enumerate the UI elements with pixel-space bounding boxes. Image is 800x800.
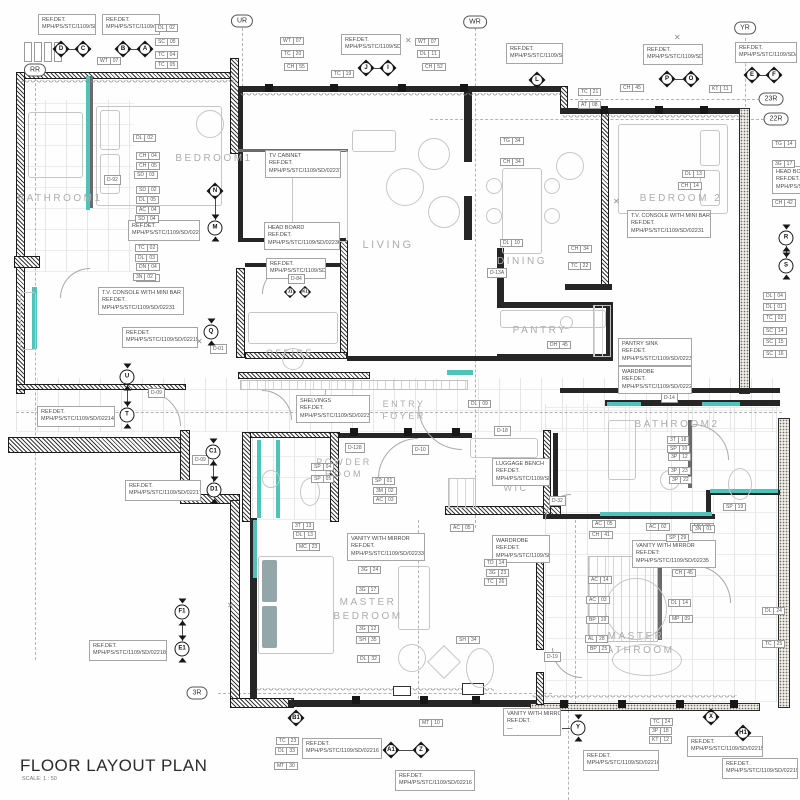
column-pier <box>472 696 480 704</box>
wall-segment <box>236 268 245 358</box>
furniture-outline <box>352 130 396 152</box>
ref-detail-note: REF.DET.MPH/PS/STC/1109/SD/02210 <box>735 42 797 63</box>
wall-segment <box>242 432 340 438</box>
centerline <box>568 700 569 800</box>
teal-wall-finish <box>257 440 261 518</box>
section-marker: R <box>779 231 794 246</box>
wall-segment <box>347 356 613 361</box>
finish-tag: TC05 <box>155 61 178 69</box>
room-label: BATHROOM1 <box>17 192 102 206</box>
furniture-outline <box>100 110 120 150</box>
elevation-marker: A1 <box>382 741 400 759</box>
section-marker: Y <box>571 721 586 736</box>
finish-tag: DL24 <box>762 607 785 615</box>
finish-tag: MC23 <box>296 543 320 551</box>
wall-segment <box>739 108 750 394</box>
finish-tag: DL04 <box>763 292 786 300</box>
finish-tag: AC03 <box>586 596 610 604</box>
finish-tag: DL13 <box>682 170 705 178</box>
ref-detail-note: REF.DET.MPH/PS/STC/1109/SD/02216 <box>395 770 475 791</box>
ref-detail-note: REF.DET.MPH/PS/STC/1109/SD/02238 <box>38 14 96 35</box>
ref-detail-note: HEAD BOARDREF.DET.MPH/PS/S <box>772 166 800 194</box>
elevation-marker: A <box>136 40 154 58</box>
teal-wall-finish <box>607 402 641 406</box>
elevation-marker: B1 <box>287 709 305 727</box>
room-label: DINING <box>497 255 547 269</box>
ref-detail-note: PANTRY SINKREF.DET.MPH/PS/STC/1109/SD/02… <box>618 338 692 366</box>
wall-segment <box>464 196 472 240</box>
finish-tag: TD14 <box>484 559 507 567</box>
elevation-marker: B <box>114 40 132 58</box>
furniture-outline <box>544 178 560 194</box>
finish-tag: DN04 <box>136 263 160 271</box>
finish-tag: 3P23 <box>668 467 691 475</box>
door-swing-arc <box>60 268 90 298</box>
finish-tag: BP25 <box>587 645 610 653</box>
finish-tag: DL01 <box>763 303 786 311</box>
ref-detail-note: REF.DET.MPH/PS/STC/1109/SD/02217 <box>125 480 201 501</box>
finish-tag: DL14 <box>668 599 691 607</box>
finish-tag: TC21 <box>578 88 601 96</box>
furniture-outline <box>593 305 611 357</box>
furniture-outline <box>418 138 450 170</box>
column-pier <box>404 428 412 436</box>
furniture-outline <box>398 566 430 630</box>
finish-tag: SP05 <box>311 475 334 483</box>
finish-tag: TC02 <box>135 244 158 252</box>
elevation-marker: J <box>357 59 375 77</box>
grid-bubble: UR <box>231 15 253 28</box>
finish-tag: AC05 <box>450 524 474 532</box>
ref-detail-note: REF.DET.MPH/PS/STC/1109/SD/02211 <box>341 34 401 55</box>
finish-tag: DL02 <box>155 24 178 32</box>
finish-tag: 3G17 <box>356 586 379 594</box>
finish-tag: AT08 <box>578 101 601 109</box>
elevation-marker: C <box>74 40 92 58</box>
finish-tag-vertical <box>44 42 52 62</box>
finish-tag: TC20 <box>281 50 304 58</box>
elevation-marker: I <box>379 59 397 77</box>
elevation-marker: P <box>658 70 676 88</box>
furniture-outline <box>556 152 584 180</box>
finish-tag: SP10 <box>667 445 690 453</box>
finish-tag: SH34 <box>456 636 480 644</box>
finish-tag: BP19 <box>586 616 609 624</box>
elevation-marker: L <box>528 71 546 89</box>
elevation-marker: Z <box>412 741 430 759</box>
ref-detail-note: VANITY WITH MIRRORREF.DET:MPH/PS/STC/110… <box>632 540 716 568</box>
teal-wall-finish <box>600 512 712 516</box>
furniture-outline <box>262 470 280 488</box>
furniture-outline <box>100 154 120 194</box>
column-pier <box>330 84 338 92</box>
finish-tag: SC05 <box>155 38 179 46</box>
elevation-marker: N <box>206 182 224 200</box>
finish-tag-vertical <box>34 42 42 62</box>
finish-tag: SD03 <box>134 171 158 179</box>
elevation-marker: O <box>682 70 700 88</box>
wall-segment <box>288 700 540 707</box>
wall-segment <box>16 72 238 79</box>
wall-segment <box>536 672 544 705</box>
furniture-outline <box>20 292 36 350</box>
finish-tag: TC24 <box>650 718 673 726</box>
finish-tag: CH34 <box>568 245 592 253</box>
section-marker: S <box>779 259 794 274</box>
finish-tag: CH41 <box>589 531 613 539</box>
marker-connector <box>399 750 413 751</box>
finish-tag: 3P12 <box>668 453 691 461</box>
room-label: BEDROOM 2 <box>640 192 723 206</box>
door-swing-arc <box>378 438 418 478</box>
section-marker: D1 <box>207 483 222 498</box>
finish-tag: KT12 <box>649 736 672 744</box>
ref-detail-note: T.V. CONSOLE WITH MINI BARREF.DET.MPH/PS… <box>98 287 184 315</box>
wall-segment <box>238 92 243 240</box>
column-pier <box>265 84 273 92</box>
teal-wall-finish <box>447 370 473 375</box>
ref-detail-note: REF.DET.MPH/PS/STC/1109/SD/02212 <box>643 44 703 65</box>
finish-tag: AC05 <box>592 520 616 528</box>
insulation-squiggle <box>562 115 744 120</box>
finish-tag: TG34 <box>500 137 524 145</box>
finish-tag: 3P22 <box>669 476 692 484</box>
furniture-outline <box>700 130 720 166</box>
ref-detail-note: T.V. CONSOLE WITH MINI BARREF.DET.MPH/PS… <box>627 210 711 238</box>
column-pier <box>700 106 708 114</box>
wall-segment <box>238 372 370 379</box>
column-pier <box>560 700 568 708</box>
door-tag: D-32 <box>549 496 566 506</box>
room-label: PANTRY <box>513 324 568 338</box>
elevation-marker: D <box>52 40 70 58</box>
room-label: BATHROOM2 <box>634 418 719 432</box>
furniture-outline <box>486 208 502 224</box>
finish-tag: WT07 <box>97 57 121 65</box>
finish-tag: DL11 <box>417 50 440 58</box>
ref-detail-note: REF.DET.MPH/PS/STC/1109/SD/02216 <box>583 750 659 771</box>
furniture-outline <box>448 478 476 508</box>
grid-bubble: YR <box>734 22 756 35</box>
column-pier <box>655 106 663 114</box>
door-tag: D-14 <box>661 393 678 403</box>
ref-detail-note: REF.DET.MPH/PS/STC/1109/SD/02218 <box>89 640 167 661</box>
finish-tag: 3G23 <box>486 569 509 577</box>
door-tag: D-128 <box>345 443 365 453</box>
furniture-outline <box>470 438 538 458</box>
door-tag: D-13A <box>487 268 507 278</box>
page-title: FLOOR LAYOUT PLAN <box>20 756 207 776</box>
finish-tag: TC23 <box>276 737 299 745</box>
finish-tag: KT11 <box>709 85 732 93</box>
column-pier <box>618 700 626 708</box>
insulation-squiggle <box>256 688 494 693</box>
finish-tag: TG14 <box>772 140 796 148</box>
door-tag: D-19 <box>544 652 561 662</box>
grid-bubble: 23R <box>759 93 784 106</box>
room-label: ENTRYFOYER <box>382 398 426 422</box>
finish-tag: MT30 <box>274 762 298 770</box>
column-block <box>393 686 411 696</box>
ref-detail-note: LUGGAGE BENCHREF.DET.MPH/PS/STC/1109/SD/… <box>492 458 550 486</box>
ref-detail-note: REF.DET.MPH/PS/STC/1109/SD/02211 <box>506 43 563 64</box>
finish-tag: WT07 <box>415 38 439 46</box>
finish-tag: 3N02 <box>133 273 156 281</box>
ref-detail-note: HEAD BOARDREF.DET.MPH/PS/STC/1109/SD/022… <box>264 222 340 250</box>
insulation-squiggle <box>18 80 236 85</box>
finish-tag: 3T13 <box>292 522 314 530</box>
door-tag: D-10 <box>412 445 429 455</box>
finish-tag: AC03 <box>373 496 397 504</box>
finish-tag: DL03 <box>135 254 158 262</box>
finish-tag: MT10 <box>419 719 443 727</box>
finish-tag: 3G24 <box>358 566 381 574</box>
wall-segment <box>565 284 612 290</box>
ref-detail-note: REF.DET.MPH/PS/STC/1109/SD/02209 <box>102 14 160 35</box>
light-fixture-mark: ✕ <box>613 198 620 206</box>
finish-tag: MP09 <box>669 615 693 623</box>
wall-segment <box>340 240 348 358</box>
wall-segment <box>230 698 294 708</box>
section-marker: E1 <box>175 642 190 657</box>
finish-tag: TC25 <box>762 640 785 648</box>
furniture-outline <box>28 112 83 178</box>
door-tag: D-18 <box>494 426 511 436</box>
finish-tag: CH42 <box>772 199 796 207</box>
furniture-outline <box>248 312 338 344</box>
column-pier <box>600 106 608 114</box>
finish-tag: TC22 <box>568 262 591 270</box>
furniture-outline <box>428 196 460 228</box>
finish-tag: DL13 <box>293 531 316 539</box>
furniture-outline <box>240 380 468 390</box>
grid-bubble: WR <box>463 16 487 29</box>
furniture-outline <box>398 644 426 672</box>
elevation-marker: E <box>743 66 761 84</box>
marker-connector <box>562 728 570 729</box>
wall-segment <box>464 92 472 162</box>
finish-tag: DL32 <box>357 655 380 663</box>
finish-tag: TC02 <box>763 314 786 322</box>
section-marker: Q <box>204 325 219 340</box>
finish-tag: DL09 <box>468 400 491 408</box>
room-label: LIVING <box>362 238 413 253</box>
finish-tag: DL33 <box>275 747 298 755</box>
furniture-outline <box>262 560 277 602</box>
elevation-marker: H1 <box>734 724 752 742</box>
column-pier <box>676 700 684 708</box>
elevation-marker: K1 <box>299 286 312 299</box>
light-fixture-mark: ✕ <box>674 34 681 42</box>
column-pier <box>460 84 468 92</box>
ref-detail-note: REF.DET.MPH/PS/STC/1109/SD/02215 <box>122 327 198 348</box>
grid-bubble: 3R <box>187 687 208 700</box>
wall-segment <box>242 432 251 522</box>
finish-tag: DL10 <box>500 239 523 247</box>
door-tag: D-92 <box>104 175 121 185</box>
wall-segment <box>601 112 609 286</box>
furniture-outline <box>196 110 224 138</box>
door-tag: D-84 <box>288 274 305 284</box>
finish-tag: TC26 <box>484 578 507 586</box>
finish-tag: WT07 <box>280 37 304 45</box>
finish-tag: 3M02 <box>373 487 397 495</box>
finish-tag: SD02 <box>136 186 160 194</box>
wall-segment <box>536 548 544 650</box>
furniture-outline <box>728 468 752 500</box>
centerline <box>218 693 552 694</box>
furniture-outline <box>466 648 494 688</box>
finish-tag-vertical <box>24 42 32 62</box>
finish-tag: DL05 <box>136 196 159 204</box>
finish-tag: SP19 <box>723 503 746 511</box>
wall-segment <box>778 418 790 708</box>
insulation-squiggle <box>240 93 562 98</box>
finish-tag: CH52 <box>422 63 446 71</box>
finish-tag: CH45 <box>620 84 644 92</box>
furniture-outline <box>386 168 424 206</box>
finish-tag: CH14 <box>678 182 702 190</box>
finish-tag: SP01 <box>372 477 395 485</box>
wall-segment <box>8 437 186 453</box>
finish-tag: 3N01 <box>692 525 715 533</box>
column-pier <box>730 700 738 708</box>
finish-tag: SP29 <box>666 534 689 542</box>
light-fixture-mark: ✕ <box>196 338 203 346</box>
column-pier <box>420 696 428 704</box>
ref-detail-note: VANITY WITH MIRRORREF.DET.— <box>503 708 561 736</box>
ref-detail-note: REF.DET.MPH/PS/STC/1109/SD/02216 <box>302 738 382 759</box>
finish-tag: DH45 <box>547 341 571 349</box>
finish-tag: TC19 <box>331 70 354 78</box>
finish-tag: SC15 <box>763 338 787 346</box>
finish-tag: AC04 <box>136 206 160 214</box>
finish-tag: AC02 <box>646 523 670 531</box>
finish-tag: CH04 <box>136 152 160 160</box>
teal-wall-finish <box>86 76 90 210</box>
ref-detail-note: VANITY WITH MIRRORREF.DET.MPH/PS/STC/110… <box>347 533 425 561</box>
finish-tag: 3G12 <box>356 625 379 633</box>
furniture-outline <box>262 606 277 648</box>
floor-plan-canvas: FLOOR LAYOUT PLAN SCALE: 1 : 50 BATHROOM… <box>0 0 800 800</box>
centerline <box>560 99 760 100</box>
finish-tag: TC04 <box>155 51 178 59</box>
finish-tag: CH55 <box>284 63 308 71</box>
grid-bubble: RR <box>24 64 46 77</box>
section-marker: M <box>208 221 223 236</box>
finish-tag: SC16 <box>763 350 787 358</box>
ref-detail-note: SHELVINGSREF.DET.MPH/PS/STC/1109/SD/0223… <box>296 395 370 423</box>
light-fixture-mark: ✕ <box>405 37 412 45</box>
column-pier <box>350 428 358 436</box>
grid-bubble: 22R <box>764 113 789 126</box>
finish-tag: CH45 <box>672 569 696 577</box>
column-pier <box>398 84 406 92</box>
teal-wall-finish <box>253 520 257 578</box>
elevation-marker: J1 <box>284 286 297 299</box>
column-pier <box>352 696 360 704</box>
light-fixture-mark: ✕ <box>227 602 234 610</box>
section-marker: F1 <box>175 605 190 620</box>
teal-wall-finish <box>702 402 740 406</box>
finish-tag: AC14 <box>588 576 612 584</box>
elevation-marker: F <box>765 66 783 84</box>
section-marker: C1 <box>206 445 221 460</box>
furniture-outline <box>486 178 502 194</box>
room-label: OFFICE <box>266 347 314 359</box>
scale-note: SCALE: 1 : 50 <box>22 776 57 782</box>
ref-detail-note: REF.DET.MPH/PS/STC/1109/SD/02213 <box>128 220 200 241</box>
finish-tag: 3T18 <box>667 436 689 444</box>
finish-tag: CH34 <box>500 158 524 166</box>
finish-tag: DL02 <box>133 134 156 142</box>
finish-tag: SH35 <box>356 636 380 644</box>
finish-tag: SD04 <box>135 215 159 223</box>
ref-detail-note: REF.DET.MPH/PS/STC/1109/SD/02214 <box>37 406 115 427</box>
furniture-outline <box>608 420 636 480</box>
door-tag: D-01 <box>210 344 227 354</box>
finish-tag: AL28 <box>585 635 608 643</box>
door-tag: D-09 <box>148 388 165 398</box>
room-label: MASTERBEDROOM <box>333 596 402 623</box>
ref-detail-note: WARDROBEREF.DET.MPH/PS/STC/1109/SD/02227 <box>618 366 692 394</box>
wall-segment <box>90 76 93 208</box>
section-marker: U <box>120 370 135 385</box>
room-label: BEDROOM1 <box>175 152 252 166</box>
ref-detail-note: TV CABINETREF.DET.MPH/PS/STC/1109/SD/022… <box>265 150 341 178</box>
wall-segment <box>14 256 40 268</box>
furniture-outline <box>544 208 560 224</box>
furniture-outline <box>427 645 461 679</box>
section-marker: T <box>120 408 135 423</box>
elevation-marker: X <box>702 708 720 726</box>
finish-tag: SC14 <box>763 327 787 335</box>
finish-tag: CH05 <box>136 162 160 170</box>
finish-tag: 3P18 <box>649 727 672 735</box>
ref-detail-note: REF.DET.MPH/PS/STC/1109/SD/02219 <box>722 758 798 779</box>
finish-tag: 3G17 <box>772 160 795 168</box>
finish-tag: SP04 <box>311 463 334 471</box>
